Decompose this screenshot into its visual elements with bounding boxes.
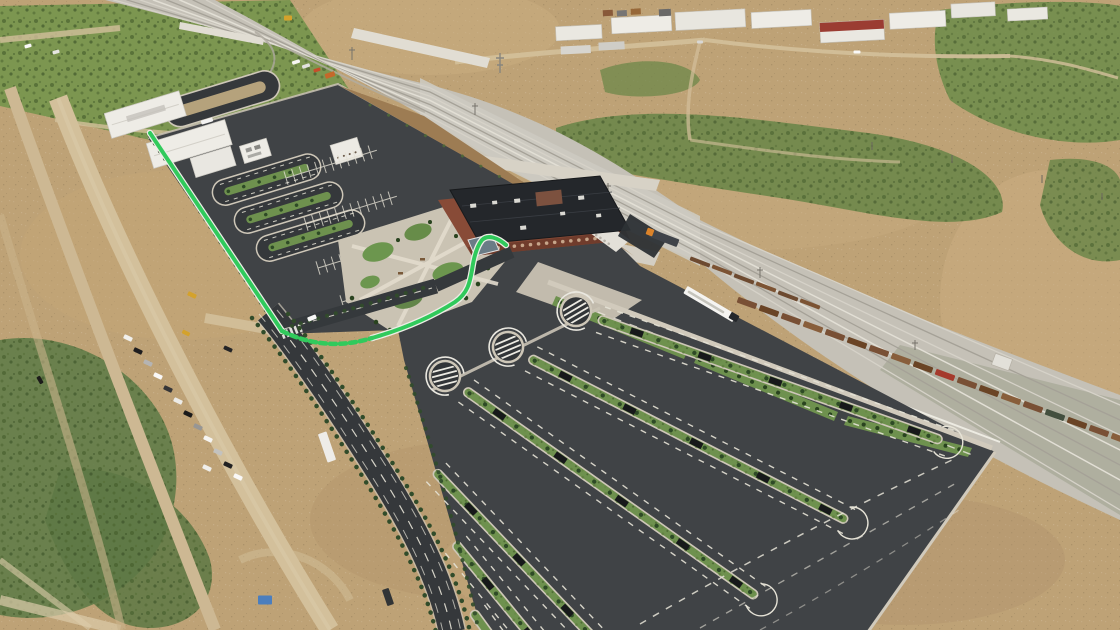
photo-tint xyxy=(0,0,1120,630)
aerial-photo xyxy=(0,0,1120,630)
